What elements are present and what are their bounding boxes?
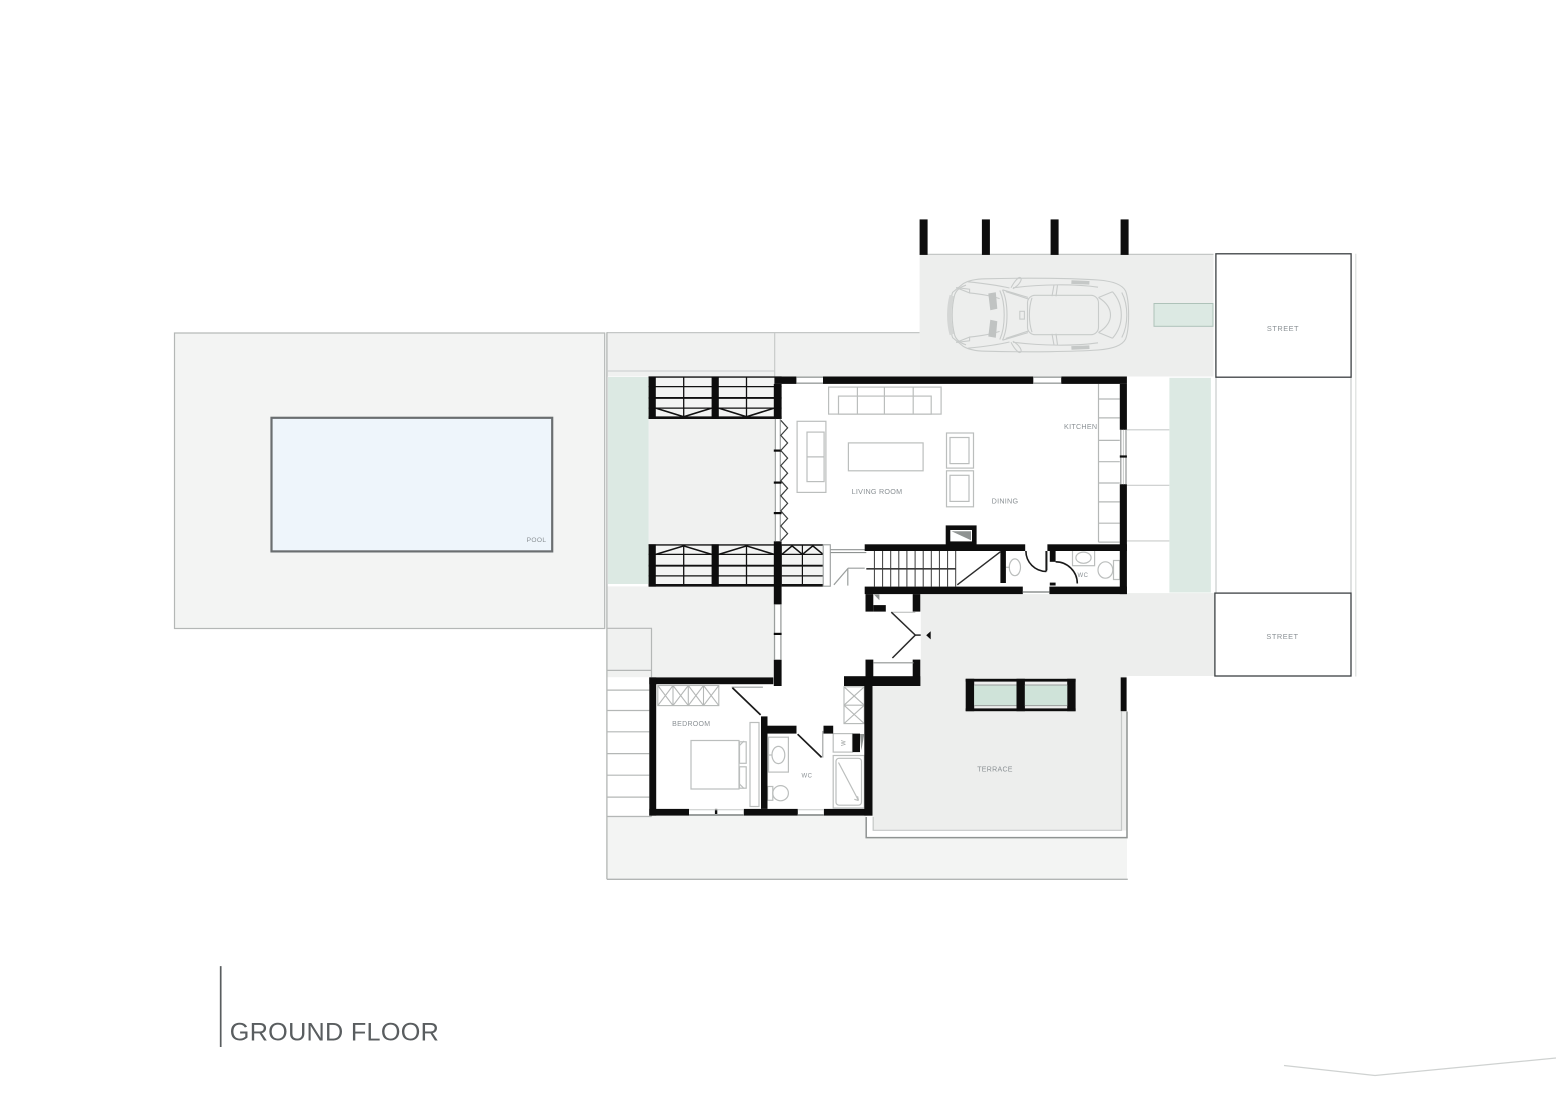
svg-text:BEDROOM: BEDROOM bbox=[672, 721, 710, 728]
svg-text:STREET: STREET bbox=[1266, 632, 1298, 641]
svg-text:W: W bbox=[842, 740, 848, 746]
svg-text:STREET: STREET bbox=[1267, 324, 1299, 333]
svg-text:GROUND FLOOR: GROUND FLOOR bbox=[230, 1018, 439, 1046]
svg-text:KITCHEN: KITCHEN bbox=[1064, 422, 1097, 431]
svg-text:WC: WC bbox=[1078, 573, 1089, 579]
svg-text:LIVING ROOM: LIVING ROOM bbox=[852, 487, 903, 496]
svg-text:WC: WC bbox=[802, 774, 813, 780]
svg-text:POOL: POOL bbox=[527, 537, 547, 544]
svg-text:DINING: DINING bbox=[992, 496, 1019, 505]
svg-text:TERRACE: TERRACE bbox=[977, 767, 1013, 774]
